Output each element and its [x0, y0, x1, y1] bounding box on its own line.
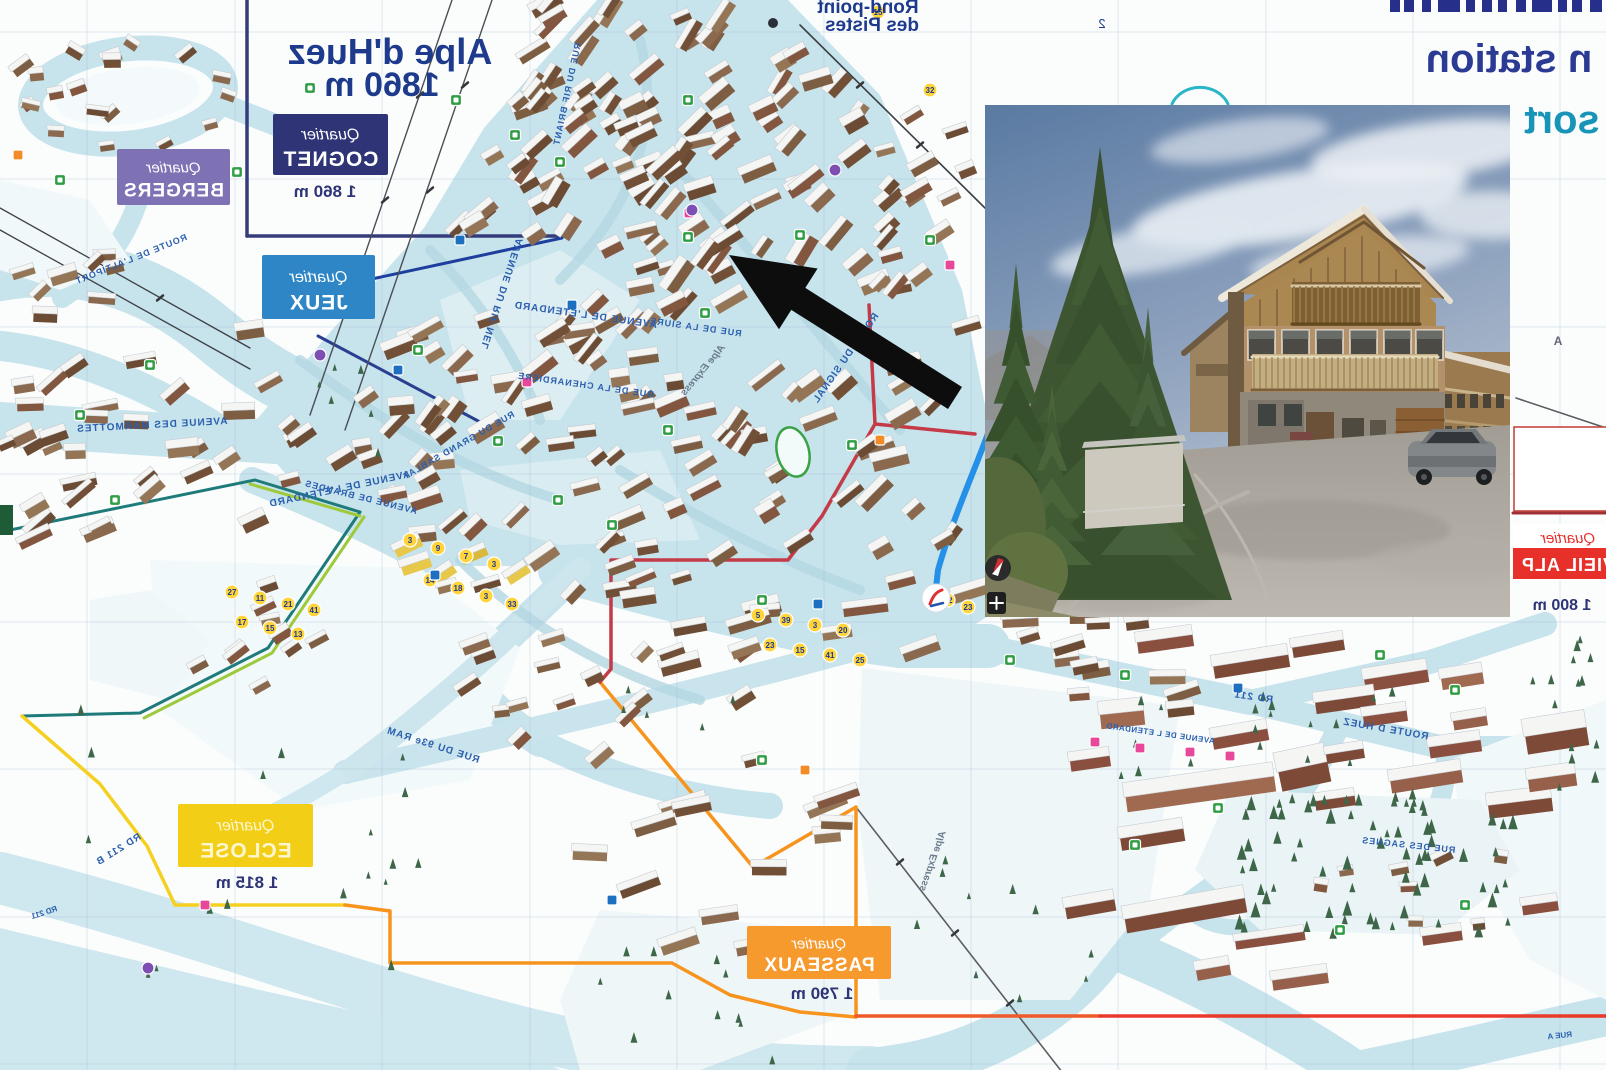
svg-text:des Pistes: des Pistes	[825, 15, 919, 36]
svg-text:15: 15	[796, 646, 805, 655]
svg-text:3: 3	[484, 592, 489, 601]
svg-text:1860 m: 1860 m	[324, 66, 439, 104]
svg-text:21: 21	[284, 600, 293, 609]
svg-text:15: 15	[266, 624, 275, 633]
svg-text:3: 3	[492, 560, 497, 569]
svg-text:23: 23	[766, 641, 775, 650]
svg-text:sort: sort	[1524, 98, 1600, 142]
svg-text:1 790 m: 1 790 m	[791, 984, 853, 1003]
svg-text:n station: n station	[1426, 37, 1593, 81]
svg-text:1 860 m: 1 860 m	[294, 182, 356, 201]
svg-text:Quartier: Quartier	[791, 935, 846, 952]
svg-text:PASSEAUX: PASSEAUX	[763, 955, 874, 976]
svg-text:20: 20	[839, 626, 848, 635]
svg-text:Quartier: Quartier	[145, 160, 200, 177]
svg-text:3: 3	[408, 536, 413, 545]
svg-text:11: 11	[256, 594, 265, 603]
svg-text:3: 3	[813, 621, 818, 630]
svg-text:Quartier: Quartier	[216, 818, 274, 835]
svg-text:13: 13	[294, 630, 303, 639]
svg-text:41: 41	[826, 651, 835, 660]
svg-text:9: 9	[436, 544, 441, 553]
svg-text:A: A	[1553, 334, 1562, 348]
svg-text:Quartier: Quartier	[289, 269, 347, 286]
svg-text:VIEIL ALP: VIEIL ALP	[1521, 555, 1606, 575]
svg-text:JEUX: JEUX	[289, 291, 348, 314]
svg-text:32: 32	[926, 86, 935, 95]
svg-text:5: 5	[756, 611, 761, 620]
svg-text:27: 27	[228, 588, 237, 597]
svg-text:COGNET: COGNET	[283, 148, 379, 171]
svg-text:Quartier: Quartier	[1540, 530, 1595, 547]
svg-text:ECLOSE: ECLOSE	[199, 840, 291, 863]
svg-text:1 815 m: 1 815 m	[216, 873, 278, 892]
svg-text:2: 2	[1098, 16, 1105, 31]
svg-text:41: 41	[310, 606, 319, 615]
svg-text:7: 7	[464, 552, 469, 561]
svg-text:17: 17	[238, 618, 247, 627]
svg-text:Quartier: Quartier	[301, 127, 359, 144]
svg-text:BERGERS: BERGERS	[123, 181, 224, 202]
svg-text:1 800 m: 1 800 m	[1533, 597, 1592, 614]
svg-text:23: 23	[964, 603, 973, 612]
svg-text:18: 18	[454, 584, 463, 593]
svg-text:25: 25	[856, 656, 865, 665]
svg-text:33: 33	[508, 600, 517, 609]
svg-text:39: 39	[782, 616, 791, 625]
